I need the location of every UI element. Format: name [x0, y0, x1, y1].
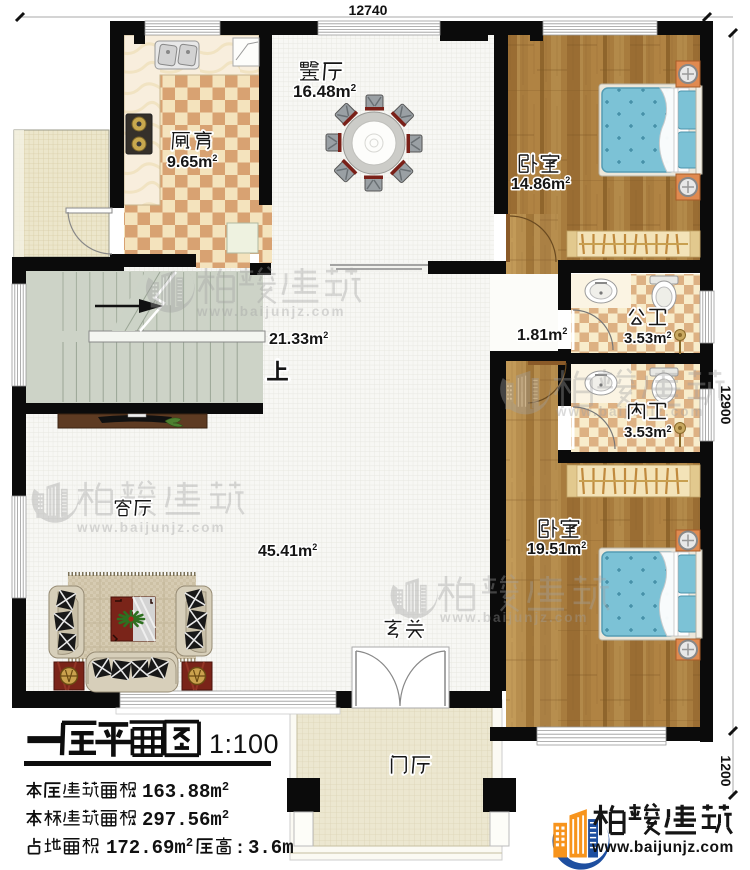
svg-text:3.53m2: 3.53m2: [624, 330, 672, 347]
svg-text::: :: [237, 837, 243, 857]
svg-text:172.69m2: 172.69m2: [106, 836, 193, 859]
svg-text:19.51m2: 19.51m2: [527, 540, 586, 558]
svg-text:16.48m2: 16.48m2: [293, 82, 357, 101]
svg-text:12900: 12900: [718, 386, 734, 425]
svg-text:www.baijunjz.com: www.baijunjz.com: [591, 839, 734, 856]
svg-text:www.baijunjz.com: www.baijunjz.com: [76, 520, 226, 535]
svg-text:1.81m2: 1.81m2: [517, 326, 567, 344]
svg-text:www.baijunjz.com: www.baijunjz.com: [439, 610, 589, 625]
svg-text:45.41m2: 45.41m2: [258, 542, 317, 560]
svg-text:1200: 1200: [718, 755, 734, 786]
svg-text:14.86m2: 14.86m2: [511, 175, 570, 193]
svg-text:163.88m2: 163.88m2: [142, 780, 229, 803]
svg-text:3.53m2: 3.53m2: [624, 424, 672, 441]
svg-text:3.6m: 3.6m: [248, 837, 294, 859]
svg-text:297.56m2: 297.56m2: [142, 808, 229, 831]
svg-text::: :: [130, 809, 136, 829]
svg-text::: :: [94, 837, 100, 857]
svg-text:21.33m2: 21.33m2: [269, 330, 328, 348]
svg-text::: :: [130, 781, 136, 801]
svg-text:1:100: 1:100: [209, 729, 279, 759]
svg-text:12740: 12740: [349, 2, 388, 18]
svg-text:www.baijunjz.com: www.baijunjz.com: [196, 304, 346, 319]
svg-text:9.65m2: 9.65m2: [167, 153, 217, 171]
